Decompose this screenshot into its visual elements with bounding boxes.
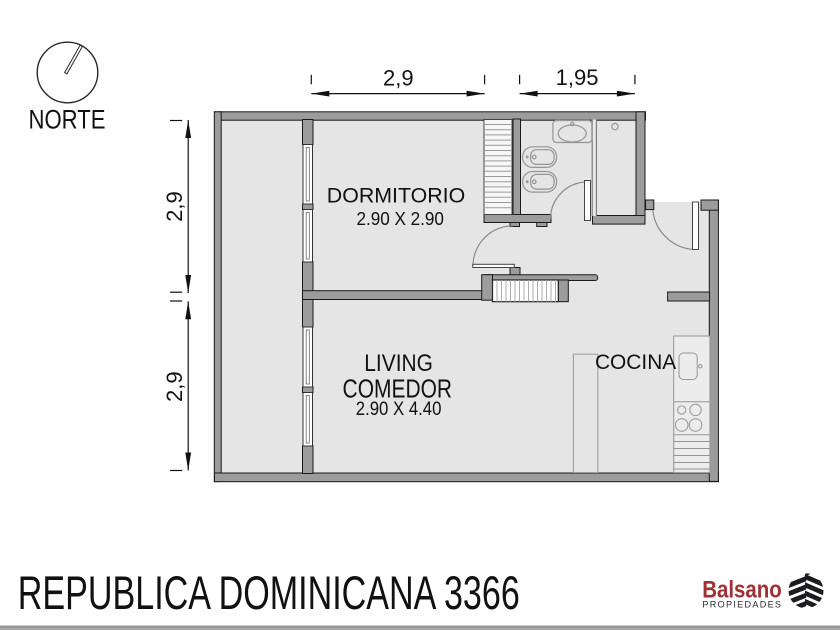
svg-text:LIVING: LIVING [364,350,433,377]
svg-text:2.90 X 2.90: 2.90 X 2.90 [356,208,444,229]
svg-text:1,95: 1,95 [556,65,599,90]
svg-text:2,9: 2,9 [162,191,187,222]
svg-text:NORTE: NORTE [29,105,106,135]
svg-text:COCINA: COCINA [595,350,677,374]
svg-text:2,9: 2,9 [383,65,414,90]
svg-text:2,9: 2,9 [162,371,187,402]
svg-text:DORMITORIO: DORMITORIO [327,183,465,207]
svg-text:REPUBLICA DOMINICANA 3366: REPUBLICA DOMINICANA 3366 [18,567,520,620]
svg-text:PROPIEDADES: PROPIEDADES [702,600,782,610]
svg-text:2.90 X 4.40: 2.90 X 4.40 [356,399,442,420]
